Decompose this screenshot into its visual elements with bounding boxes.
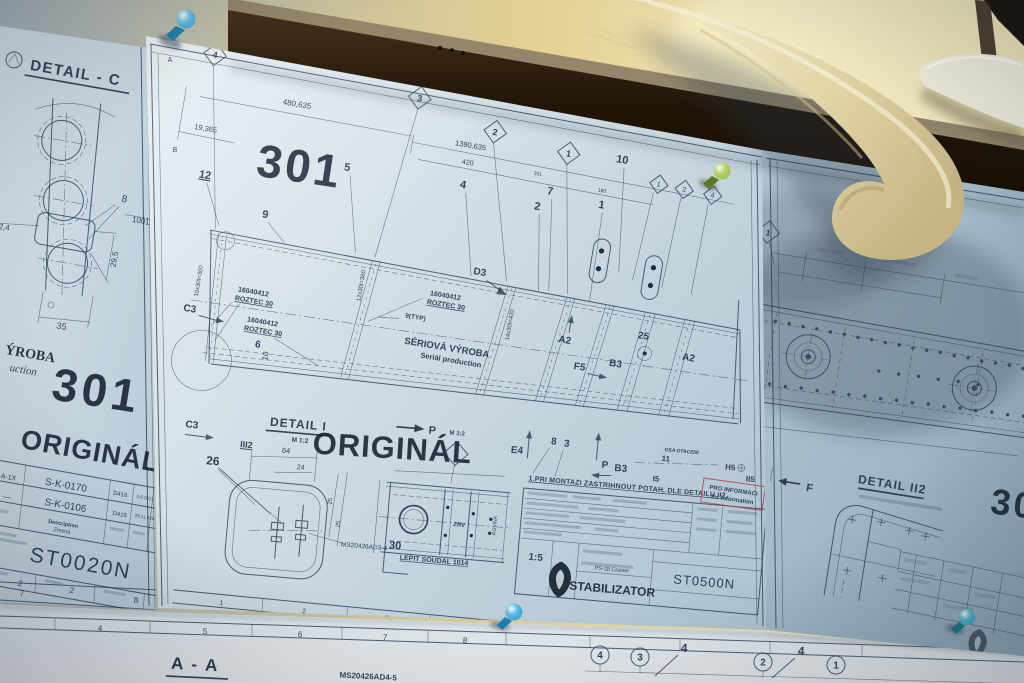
photo-scene: 4 5 6 7 8 A - A MS20426AD4-5 4 3 2 1 4 4…	[0, 0, 1024, 683]
photo-vignette	[0, 0, 1024, 683]
photo-canvas: 4 5 6 7 8 A - A MS20426AD4-5 4 3 2 1 4 4…	[0, 0, 1024, 683]
